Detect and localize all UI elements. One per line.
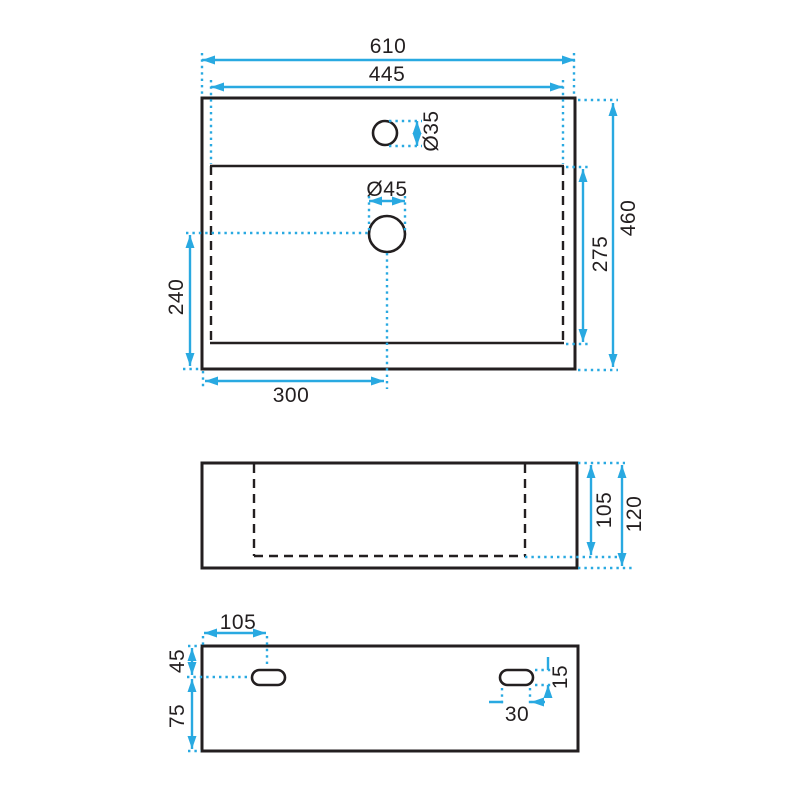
dim-label-overall-depth: 460 (617, 200, 640, 237)
bottom-view-outline (202, 646, 578, 751)
dim-label-basin-inner-height: 105 (593, 492, 616, 529)
dim-label-drain-hole-dia: Ø45 (366, 178, 407, 201)
dim-label-slot-offset-left: 105 (220, 611, 257, 634)
bottom-view: 105 45 75 30 15 (166, 611, 578, 751)
dim-inner-depth: 275 (566, 167, 612, 344)
dim-basin-inner-height: 105 (525, 463, 625, 557)
dim-overall-depth: 460 (578, 100, 640, 370)
dim-label-inner-width: 445 (369, 63, 406, 86)
front-view: 105 120 (202, 463, 646, 568)
dim-label-slot-width: 30 (505, 703, 529, 726)
dim-inner-width: 445 (211, 63, 563, 164)
dim-label-slot-offset-bottom: 75 (166, 704, 189, 728)
technical-drawing-canvas: 610 445 Ø35 Ø45 240 (0, 0, 800, 800)
dim-label-faucet-hole-dia: Ø35 (420, 110, 443, 151)
front-view-outline (202, 463, 577, 568)
dim-slot-height: 15 (535, 657, 572, 698)
mounting-slot-right (500, 670, 533, 685)
drain-hole (369, 216, 405, 252)
slot-centerline-leaders (187, 646, 250, 751)
dim-label-inner-depth: 275 (589, 236, 612, 273)
faucet-hole (373, 121, 397, 145)
dim-drain-offset-bottom: 240 (165, 235, 200, 369)
dim-slot-offset-top: 45 (166, 648, 192, 675)
dim-slot-offset-bottom: 75 (166, 679, 192, 749)
dim-label-slot-height: 15 (549, 665, 572, 689)
dim-label-drain-offset-left: 300 (273, 384, 310, 407)
extension-lines (566, 167, 591, 344)
dim-label-drain-offset-bottom: 240 (165, 279, 188, 316)
dim-drain-hole: Ø45 (366, 178, 407, 234)
dim-label-overall-width: 610 (370, 35, 407, 58)
basin-hidden-profile (254, 464, 525, 556)
dim-slot-offset-left: 105 (203, 611, 267, 668)
dim-slot-width: 30 (489, 688, 545, 726)
dim-label-slot-offset-top: 45 (166, 649, 189, 673)
mounting-slot-left (252, 670, 285, 685)
dim-label-overall-height: 120 (623, 496, 646, 533)
washbasin-dimension-diagram: 610 445 Ø35 Ø45 240 (0, 0, 800, 800)
top-view: 610 445 Ø35 Ø45 240 (165, 35, 640, 407)
extension-lines (203, 636, 267, 668)
dim-drain-offset-left: 300 (203, 371, 384, 407)
